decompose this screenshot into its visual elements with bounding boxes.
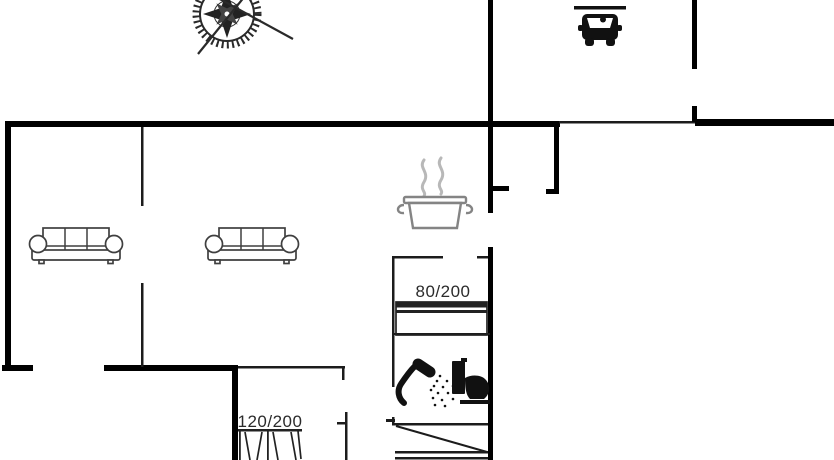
- toilet-icon: [452, 358, 490, 404]
- floor-plan: 80/200 120/200: [0, 0, 834, 460]
- sofa-icon: [30, 228, 123, 264]
- single-bed-symbol: 80/200: [396, 282, 487, 335]
- cooking-pot-icon: [398, 158, 472, 228]
- double-bed-symbol: 120/200: [238, 412, 303, 460]
- sofa-icon: [206, 228, 299, 264]
- bed-120-label: 120/200: [238, 412, 303, 431]
- stairs-symbol: [386, 419, 488, 460]
- shower-icon: [399, 364, 460, 407]
- carport-car-icon: [574, 6, 626, 46]
- bed-80-label: 80/200: [416, 282, 471, 301]
- walls: [2, 0, 834, 460]
- compass-rose-icon: [185, 0, 293, 54]
